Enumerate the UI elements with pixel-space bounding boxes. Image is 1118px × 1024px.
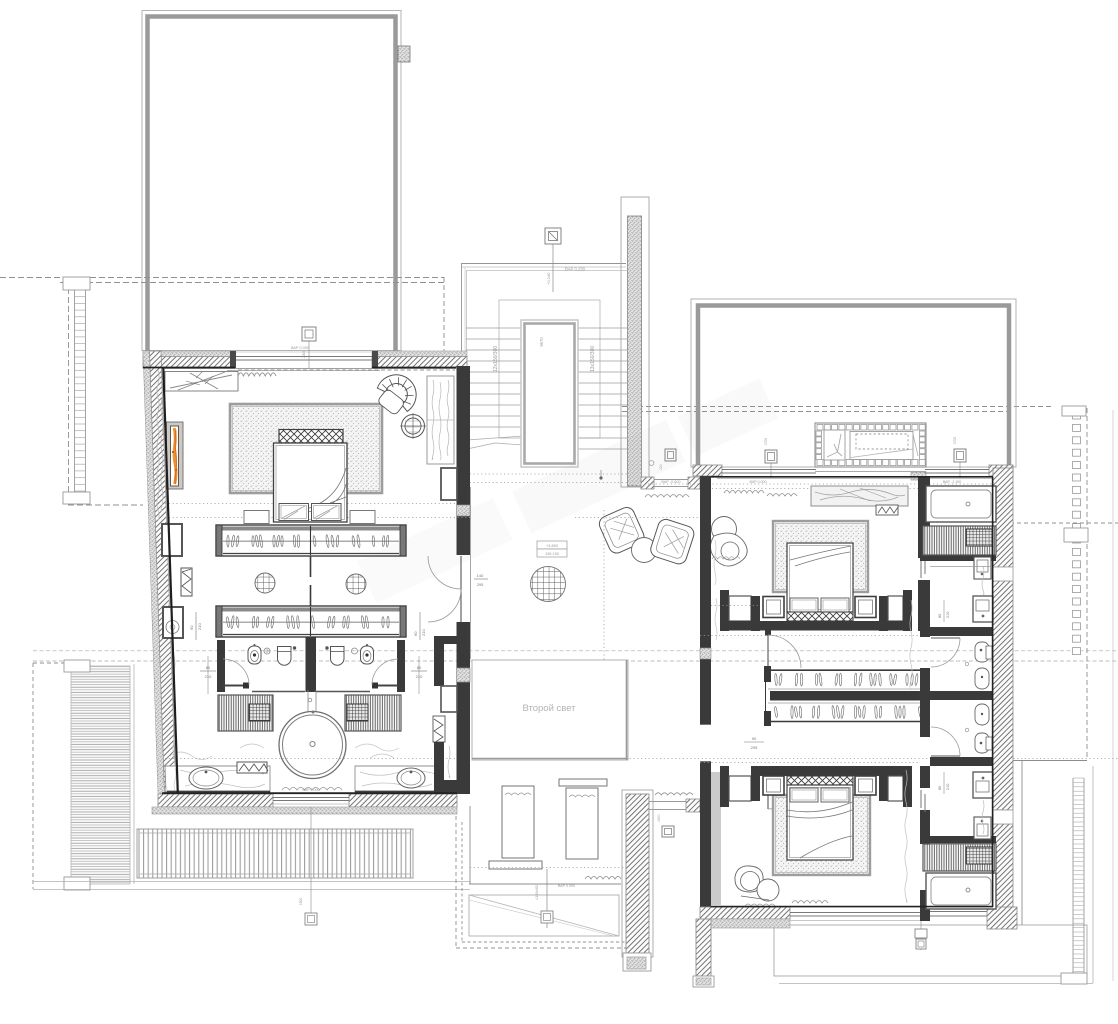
svg-text:ВАР 0.000: ВАР 0.000 xyxy=(749,480,766,484)
svg-text:210: 210 xyxy=(197,623,202,630)
svg-text:210: 210 xyxy=(421,629,426,636)
svg-text:80: 80 xyxy=(417,665,422,670)
svg-text:9670: 9670 xyxy=(539,337,544,347)
svg-text:90: 90 xyxy=(413,631,418,636)
svg-text:4.100x900: 4.100x900 xyxy=(535,885,539,900)
svg-text:80: 80 xyxy=(206,665,211,670)
svg-text:295: 295 xyxy=(477,582,484,587)
svg-text:90: 90 xyxy=(189,625,194,630)
svg-text:140: 140 xyxy=(477,573,484,578)
svg-text:12x150/300: 12x150/300 xyxy=(493,346,499,372)
svg-text:210: 210 xyxy=(205,674,212,679)
svg-text:210: 210 xyxy=(946,612,950,618)
svg-text:ВАР 0.230: ВАР 0.230 xyxy=(565,267,586,272)
svg-text:13x150/300: 13x150/300 xyxy=(590,346,596,372)
svg-text:ВАР -1.100: ВАР -1.100 xyxy=(943,480,961,484)
svg-text:210: 210 xyxy=(416,674,423,679)
svg-text:ВАР -0.600: ВАР -0.600 xyxy=(661,480,680,484)
svg-text:ВАР 0.000: ВАР 0.000 xyxy=(291,346,309,350)
svg-text:1500: 1500 xyxy=(299,898,303,905)
svg-text:136.150: 136.150 xyxy=(545,551,560,556)
svg-text:2000: 2000 xyxy=(302,351,306,358)
svg-text:210: 210 xyxy=(946,784,950,790)
svg-text:1700: 1700 xyxy=(764,438,768,445)
svg-text:ВАР 0.000: ВАР 0.000 xyxy=(558,884,575,888)
svg-text:90: 90 xyxy=(752,736,757,741)
svg-text:1700: 1700 xyxy=(953,437,957,444)
svg-text:+0.240: +0.240 xyxy=(546,272,551,285)
svg-text:1600: 1600 xyxy=(657,814,661,822)
svg-text:295: 295 xyxy=(751,745,758,750)
svg-text:80: 80 xyxy=(938,614,942,618)
svg-text:+3.850: +3.850 xyxy=(546,543,559,548)
svg-text:Второй свет: Второй свет xyxy=(522,703,576,714)
svg-text:80: 80 xyxy=(938,786,942,790)
